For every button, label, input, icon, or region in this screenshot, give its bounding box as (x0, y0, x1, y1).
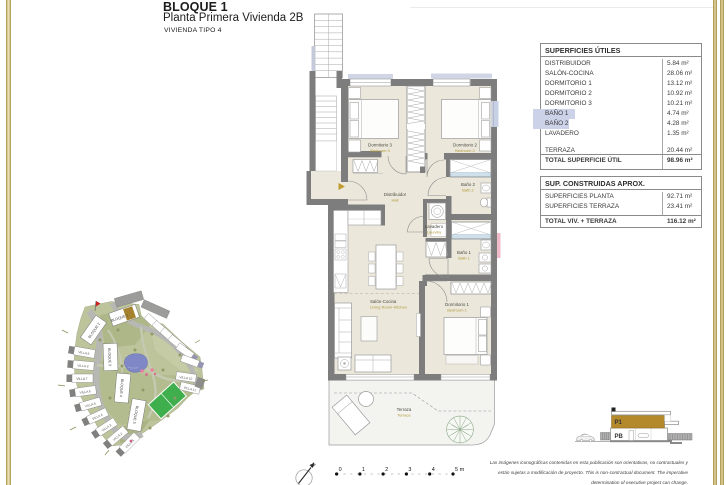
svg-text:4: 4 (432, 467, 435, 473)
svg-text:Baño 2: Baño 2 (461, 182, 475, 187)
svg-text:1: 1 (362, 467, 365, 473)
svg-text:5 m: 5 m (455, 467, 465, 473)
svg-text:VILLA 7: VILLA 7 (76, 377, 87, 381)
svg-text:Bedroom 1: Bedroom 1 (447, 308, 467, 313)
svg-text:Bedroom 3: Bedroom 3 (370, 148, 390, 153)
svg-text:Laundry: Laundry (427, 230, 441, 235)
svg-text:Bedroom 2: Bedroom 2 (455, 148, 475, 153)
svg-text:Living Room-Kitchen: Living Room-Kitchen (370, 305, 407, 310)
svg-text:Salón-Cocina: Salón-Cocina (370, 299, 397, 304)
svg-text:0: 0 (339, 467, 342, 473)
svg-text:Bath 1: Bath 1 (458, 256, 470, 261)
svg-text:P1: P1 (615, 420, 623, 426)
svg-text:Bath 2: Bath 2 (462, 188, 474, 193)
svg-text:Dormitorio 2: Dormitorio 2 (453, 143, 477, 148)
svg-text:BLOQUE 3: BLOQUE 3 (107, 348, 112, 366)
svg-text:Dormitorio 1: Dormitorio 1 (445, 302, 469, 307)
svg-text:Distribuidor: Distribuidor (384, 192, 407, 197)
svg-text:Lavadero: Lavadero (425, 224, 444, 229)
svg-text:Dormitorio 3: Dormitorio 3 (368, 143, 392, 148)
svg-text:3: 3 (408, 467, 411, 473)
svg-text:Hall: Hall (392, 198, 399, 203)
svg-text:Baño 1: Baño 1 (457, 250, 471, 255)
svg-text:2: 2 (385, 467, 388, 473)
svg-text:PB: PB (615, 434, 624, 440)
svg-text:Terrace: Terrace (397, 413, 411, 418)
svg-text:Terraza: Terraza (397, 407, 412, 412)
